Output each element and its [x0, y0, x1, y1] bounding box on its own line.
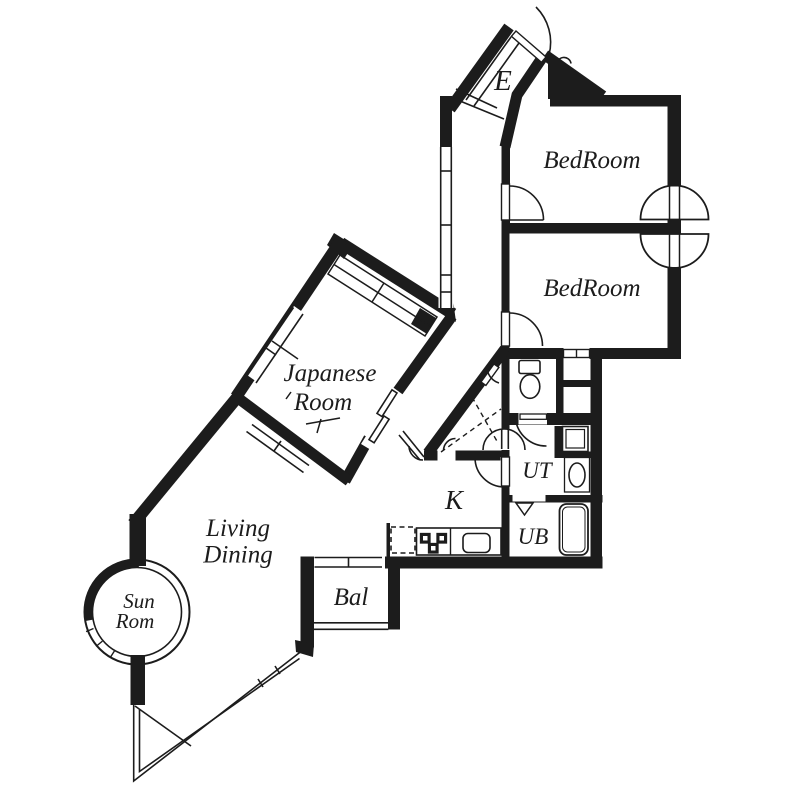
svg-text:Living: Living — [205, 515, 270, 542]
svg-text:Rom: Rom — [115, 609, 155, 633]
svg-text:BedRoom: BedRoom — [543, 147, 640, 174]
svg-text:K: K — [444, 485, 465, 515]
svg-text:E: E — [493, 65, 512, 97]
svg-text:Room: Room — [293, 389, 352, 416]
svg-text:Bal: Bal — [334, 584, 369, 611]
svg-text:Japanese: Japanese — [283, 360, 376, 387]
svg-text:Dining: Dining — [202, 542, 272, 569]
svg-text:BedRoom: BedRoom — [543, 275, 640, 302]
svg-text:UB: UB — [518, 524, 549, 549]
svg-text:UT: UT — [522, 458, 554, 483]
